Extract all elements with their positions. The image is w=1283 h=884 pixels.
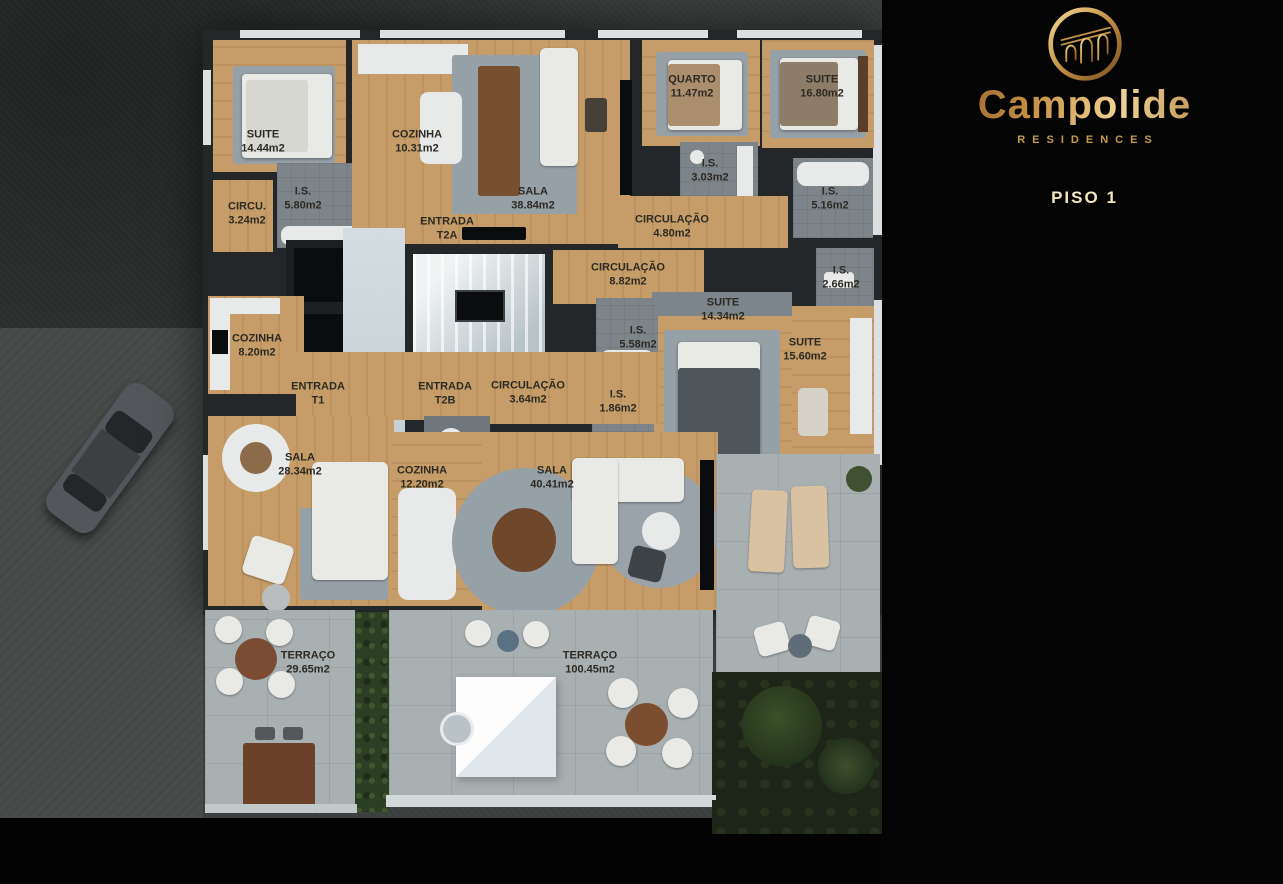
hedge [355,612,389,812]
terrace-side-table [788,634,812,658]
balcony-strip [873,45,882,235]
pouf [262,584,290,612]
window-strip [240,30,360,38]
stair-opening [455,290,505,322]
terrace-plant [846,466,872,492]
kitchen-island-marble [398,488,456,600]
table-center [240,442,272,474]
brand-name: Campolide [912,85,1257,125]
round-coffee-table [642,512,680,550]
sun-lounger [748,489,788,573]
dining-table [478,66,520,196]
window-strip [598,30,708,38]
outdoor-chair [255,727,275,740]
closet [850,318,872,434]
terrace-armchair [608,678,638,708]
brand-subtitle: RESIDENCES [912,134,1257,146]
bistro-table [497,630,519,652]
quarto-blanket [668,64,720,126]
bathtub [797,162,869,186]
window-strip [380,30,565,38]
terrace-parapet [205,804,357,813]
bistro-chair [523,621,549,647]
floor-title: PISO 1 [912,188,1257,208]
info-panel: Campolide RESIDENCES PISO 1 T2AÁREA DE C… [882,0,1283,884]
kitchen-counter-top [210,298,280,314]
brand-header: Campolide RESIDENCES PISO 1 [912,0,1257,208]
elevator-1 [294,248,350,302]
brochure-page: SUITE14.44m2COZINHA10.31m2SALA38.84m2I.S… [0,0,1283,884]
room-circ-324 [213,180,273,252]
media-wall [700,460,714,590]
sun-lounger [791,485,830,568]
coffee-table [585,98,607,132]
bench [798,388,828,436]
brand-logo-aqueduct-icon [1046,5,1124,83]
entry-console [462,227,526,240]
terrace-parapet [386,795,716,807]
garden-lower [712,800,882,834]
window-strip [737,30,862,38]
road-surface [0,328,203,822]
media-column [620,80,632,195]
terrace-armchair [606,736,636,766]
tree [742,686,822,766]
room-circ-480 [618,196,788,248]
sala-t2a-sofa [540,48,578,166]
round-wood-table [492,508,556,572]
palm-plant [818,738,874,794]
headboard [858,56,868,132]
wicker-chair [268,671,295,698]
entrada-t2b-floor [424,352,660,424]
terrace-armchair [668,688,698,718]
coffee-set-table [235,638,277,680]
entrada-t1-floor [296,352,442,420]
stove [212,330,228,354]
planter [440,712,474,746]
window-strip [203,70,211,145]
outdoor-chair [283,727,303,740]
bistro-chair [465,620,491,646]
suite-t1-blanket [780,62,838,126]
vanity [737,146,753,202]
suite-t2a-blanket [246,80,308,152]
sala-2834-sofa [312,462,388,580]
terrace-armchair [662,738,692,768]
outdoor-dining-table [243,743,315,806]
kitchen-island [420,92,462,164]
wicker-chair [266,619,293,646]
l-sofa-side [572,458,618,564]
wc [690,150,704,164]
balcony-strip [873,300,882,465]
wardrobe [652,292,792,316]
basin [824,272,854,288]
wicker-chair [215,616,242,643]
wicker-chair [216,668,243,695]
